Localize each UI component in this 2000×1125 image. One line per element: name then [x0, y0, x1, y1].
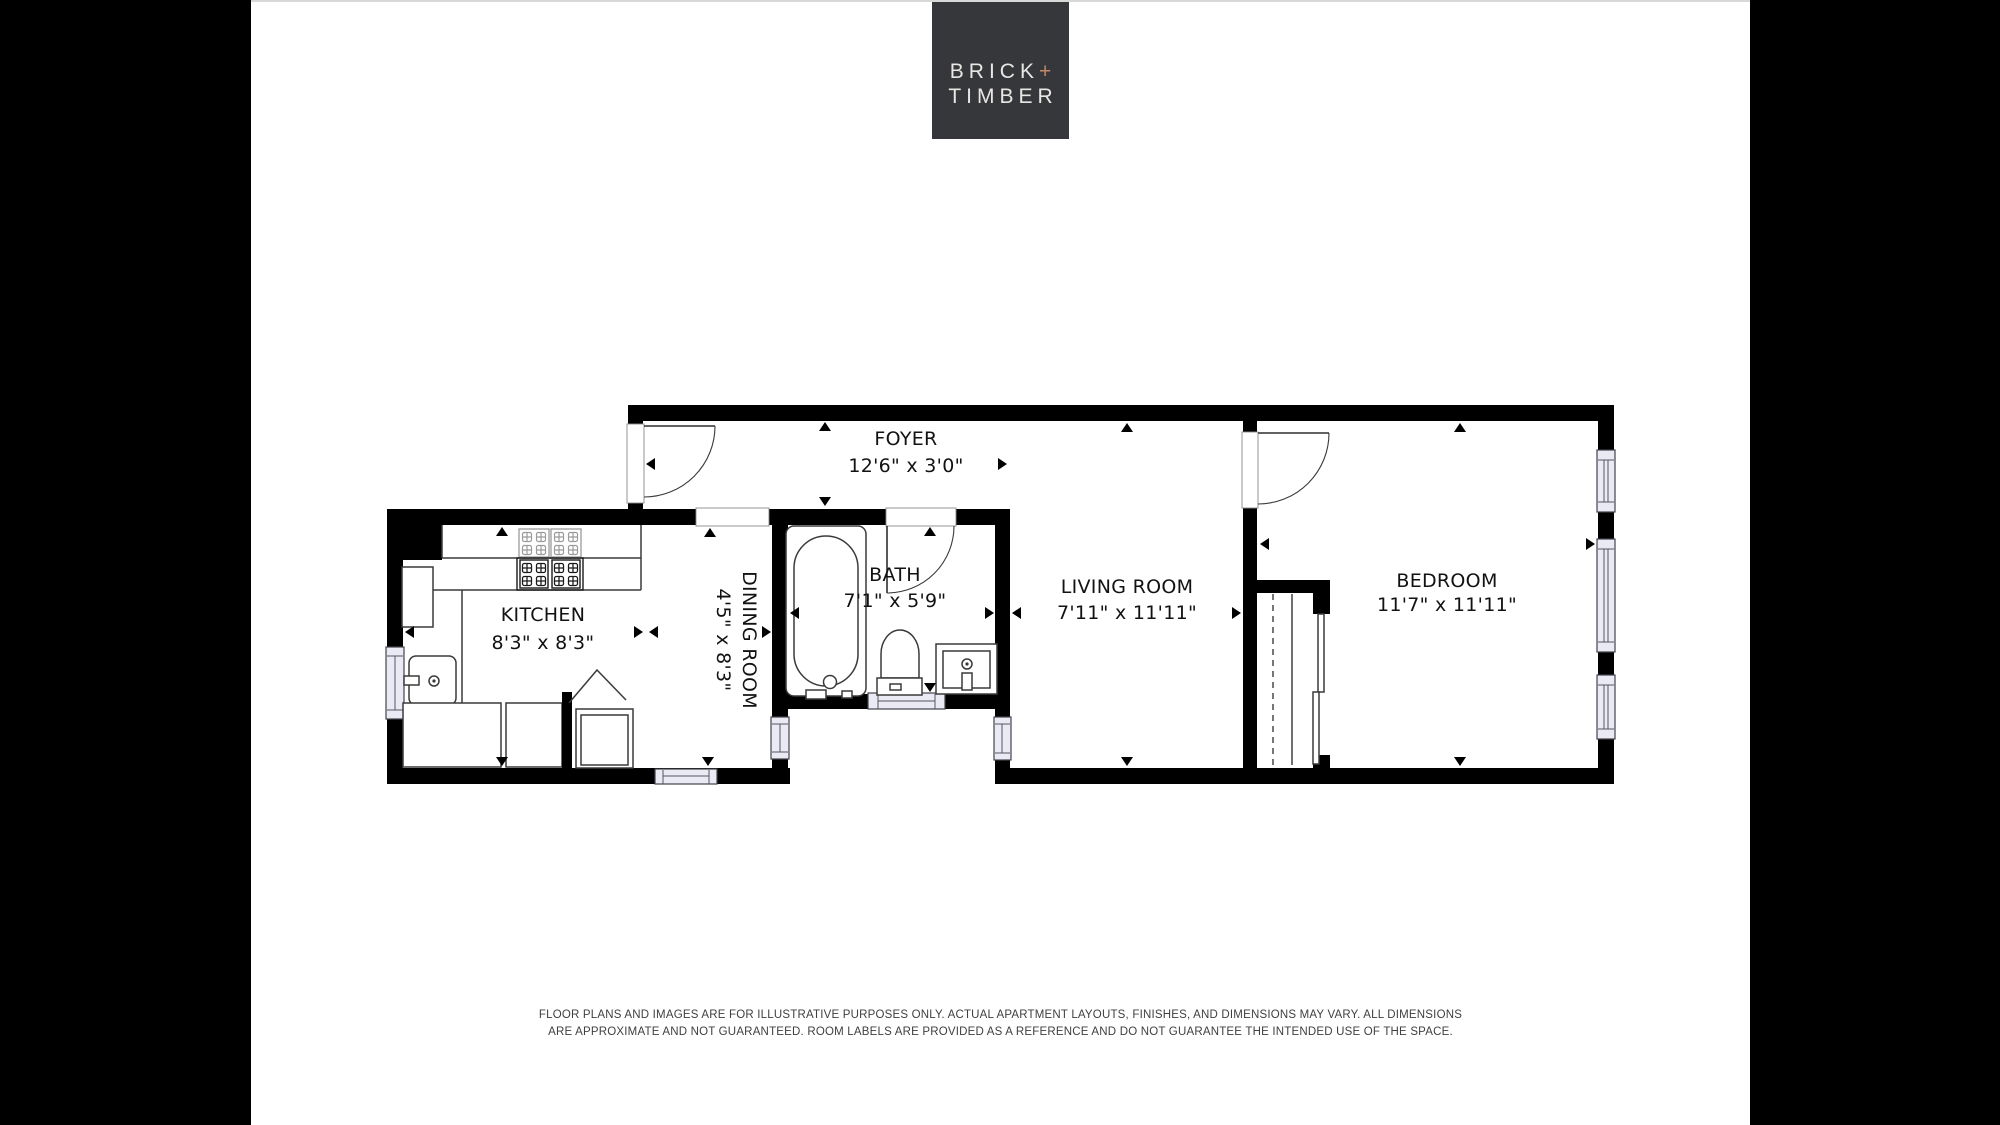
- foyer-label: FOYER: [874, 428, 937, 450]
- fridge-icon: [576, 709, 633, 768]
- living-side-window: [994, 717, 1011, 760]
- dining-dims: 4'5" x 8'3": [712, 589, 734, 692]
- bath-door-opening: [886, 508, 956, 526]
- dining-side-window: [771, 717, 789, 759]
- disclaimer-line-1: FLOOR PLANS AND IMAGES ARE FOR ILLUSTRAT…: [251, 1007, 1750, 1024]
- kitchen-stub-wall: [562, 692, 572, 768]
- bedroom-dims: 11'7" x 11'11": [1377, 594, 1517, 616]
- kitchen-sink-icon: [404, 656, 456, 705]
- living-dims: 7'11" x 11'11": [1057, 602, 1197, 624]
- bath-fixtures: [786, 526, 997, 699]
- dishwasher-icon: [506, 703, 562, 767]
- kitchen-window: [386, 647, 404, 719]
- floorplan-drawing: FOYER 12'6" x 3'0" KITCHEN 8'3" x 8'3" D…: [251, 2, 1750, 1125]
- floorplan-page: BRICK+ TIMBER: [0, 0, 2000, 1125]
- dining-bottom-window: [655, 769, 717, 784]
- floorplan-canvas: BRICK+ TIMBER: [251, 0, 1750, 1125]
- disclaimer-line-2: ARE APPROXIMATE AND NOT GUARANTEED. ROOM…: [251, 1024, 1750, 1041]
- sliding-door-panel-1: [1318, 614, 1324, 692]
- bath-sink-icon: [936, 644, 997, 694]
- dining-label: DINING ROOM: [738, 571, 760, 709]
- dining-entry-opening: [696, 508, 769, 526]
- foyer-dims: 12'6" x 3'0": [848, 455, 963, 477]
- left-letterbox: [0, 0, 251, 1125]
- bedroom-window-2: [1597, 539, 1615, 652]
- kitchen-label: KITCHEN: [501, 604, 585, 626]
- bedroom-label: BEDROOM: [1396, 570, 1497, 592]
- right-letterbox: [1750, 0, 2000, 1125]
- toilet-icon: [877, 630, 922, 695]
- dining-label-group: DINING ROOM 4'5" x 8'3": [712, 571, 760, 709]
- bath-dims: 7'1" x 5'9": [844, 590, 947, 612]
- sliding-door-panel-2: [1313, 692, 1319, 764]
- bedroom-door-opening: [1242, 432, 1258, 508]
- bedroom-window-1: [1597, 450, 1615, 512]
- bedroom-window-3: [1597, 675, 1615, 739]
- bedroom-door-swing: [1258, 433, 1329, 504]
- kitchen-cabinet: [402, 567, 433, 627]
- front-door-opening: [627, 424, 644, 503]
- kitchen-lower-cabinet: [403, 703, 501, 767]
- living-label: LIVING ROOM: [1061, 576, 1194, 598]
- kitchen-dims: 8'3" x 8'3": [492, 632, 595, 654]
- doors: [627, 424, 1329, 593]
- bath-label: BATH: [869, 564, 921, 586]
- disclaimer-text: FLOOR PLANS AND IMAGES ARE FOR ILLUSTRAT…: [251, 1007, 1750, 1041]
- bedroom-closet: [1273, 594, 1324, 765]
- stove-icon: [517, 529, 583, 590]
- closet-door-fold: [569, 670, 626, 703]
